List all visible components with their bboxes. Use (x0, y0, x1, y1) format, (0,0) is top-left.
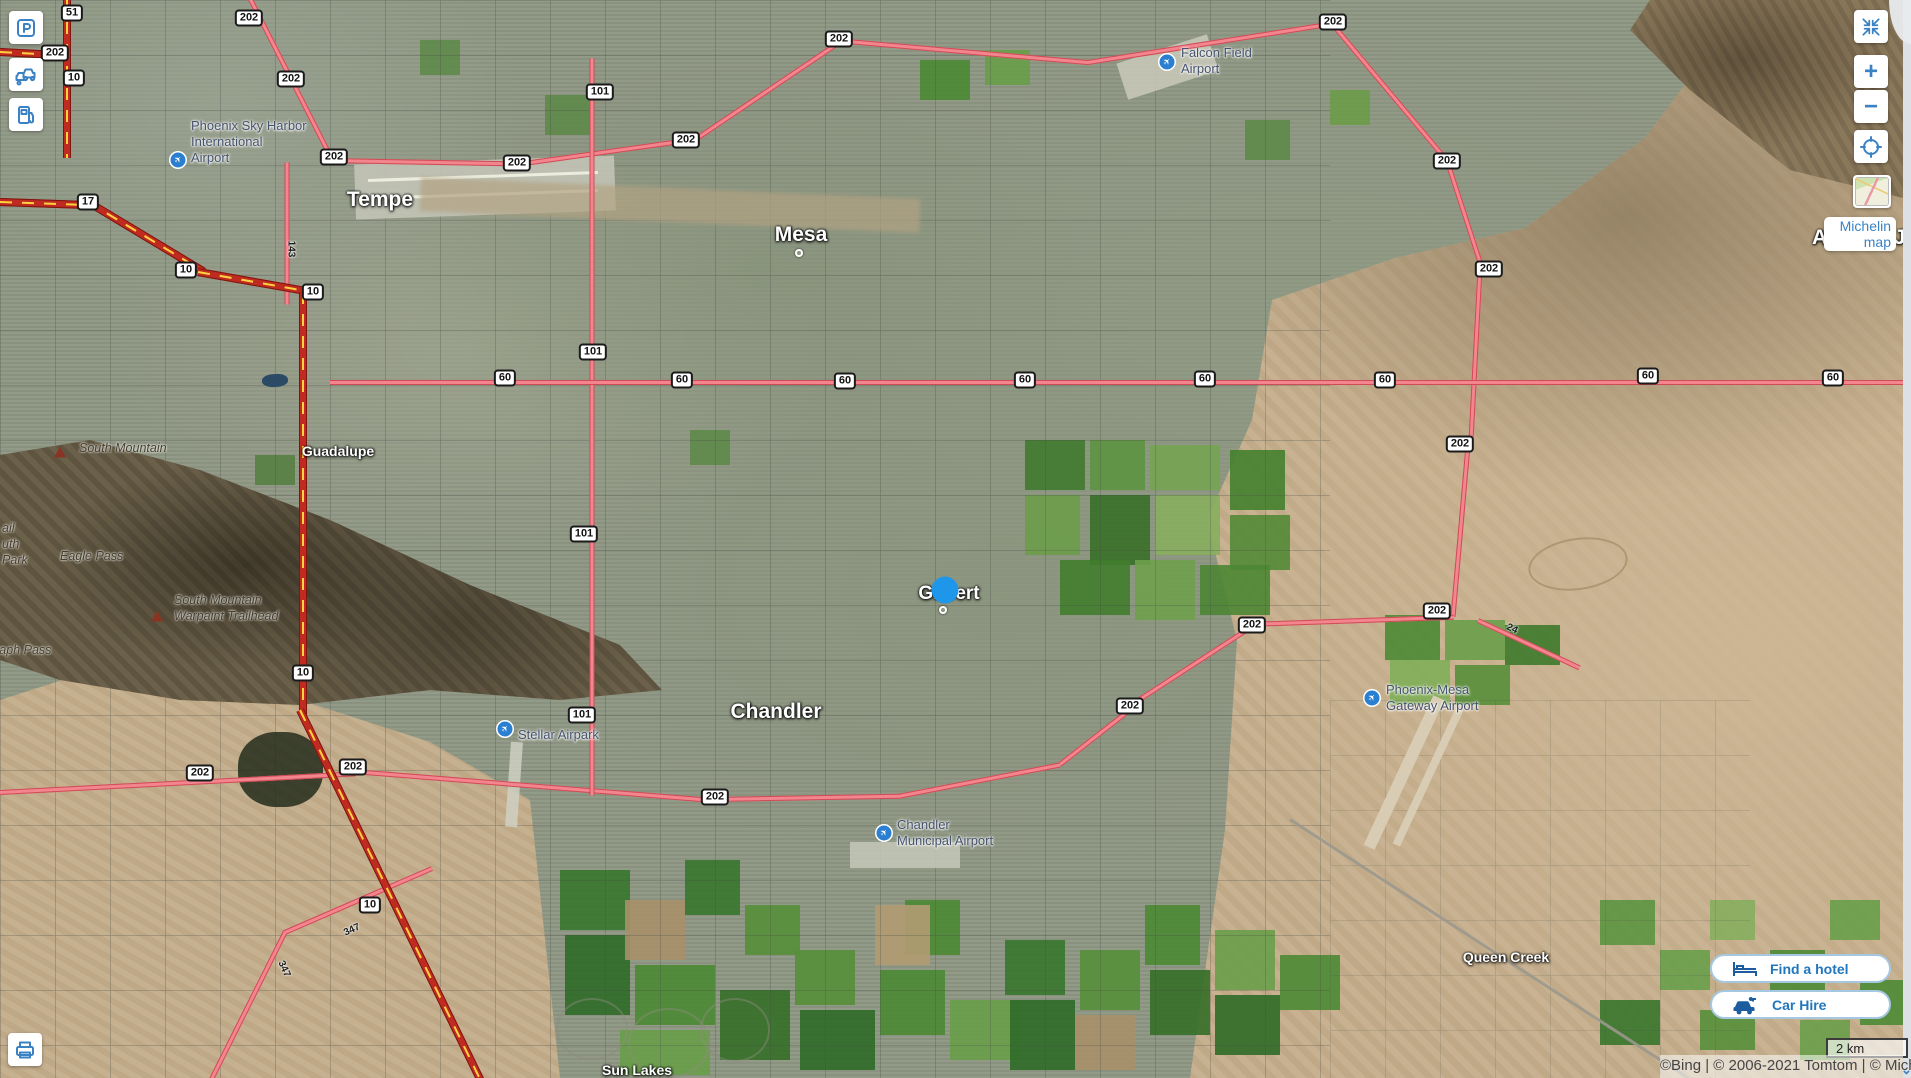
highway-segment (1134, 626, 1251, 704)
parking-button[interactable] (9, 11, 43, 44)
zoom-out-button[interactable]: − (1854, 90, 1888, 123)
highway-segment (1468, 268, 1483, 450)
highway-segment (590, 59, 595, 796)
highway-segment (898, 763, 1061, 799)
minus-icon: − (1864, 93, 1878, 121)
highway-segment (713, 794, 901, 802)
highway-segment (296, 708, 484, 1078)
highway-segment (1477, 618, 1581, 670)
highway-segment (86, 199, 206, 275)
car-hire-button[interactable]: Car Hire (1710, 990, 1891, 1019)
highway-segment (1058, 703, 1138, 767)
highway-segment (282, 866, 433, 935)
highway-segment (687, 41, 841, 147)
traffic-button[interactable] (9, 58, 43, 91)
locate-button[interactable] (1854, 130, 1888, 163)
car-hire-label: Car Hire (1772, 997, 1826, 1013)
printer-icon (13, 1039, 37, 1061)
highway-segment (1451, 445, 1471, 617)
highway-segment (63, 0, 71, 158)
bed-icon (1732, 960, 1758, 978)
highway-segment (353, 769, 715, 803)
right-edge-panel (1903, 0, 1911, 1078)
scale-label: 2 km (1836, 1041, 1864, 1056)
highways (0, 0, 1911, 1078)
map-thumbnail-icon (1855, 177, 1889, 206)
highway-segment (1247, 615, 1454, 627)
collapse-icon (1859, 15, 1883, 39)
highway-segment (0, 771, 356, 795)
highway-segment (1088, 21, 1336, 65)
zoom-in-button[interactable]: + (1854, 55, 1888, 88)
print-button[interactable] (8, 1033, 42, 1066)
highway-segment (246, 0, 331, 154)
fuel-stations-button[interactable] (9, 98, 43, 131)
collapse-button[interactable] (1854, 10, 1888, 43)
highway-segment (836, 38, 1089, 65)
highway-segment (1289, 818, 1698, 1078)
find-hotel-button[interactable]: Find a hotel (1710, 954, 1891, 983)
map-viewport[interactable]: 5120210202202202171010101202202202202202… (0, 0, 1911, 1078)
map-style-tooltip: Michelin map (1824, 217, 1896, 251)
highway-segment (1445, 160, 1485, 270)
highway-segment (1329, 21, 1449, 162)
parking-icon (15, 17, 37, 39)
car-key-icon (1732, 995, 1760, 1015)
plus-icon: + (1864, 58, 1878, 86)
locate-icon (1859, 135, 1883, 159)
highway-segment (0, 198, 94, 209)
highway-segment (197, 268, 315, 296)
map-style-button[interactable] (1853, 175, 1891, 208)
highway-segment (330, 380, 1911, 385)
fuel-station-icon (15, 104, 37, 126)
chevron-down-icon[interactable]: ⌄ (1901, 1062, 1911, 1078)
attribution-text: ©Bing | © 2006-2021 Tomtom | © Michelin (1660, 1057, 1911, 1074)
highway-segment (209, 931, 287, 1078)
highway-segment (517, 138, 692, 167)
find-hotel-label: Find a hotel (1770, 961, 1849, 977)
highway-segment (299, 292, 307, 716)
highway-segment (326, 158, 521, 166)
traffic-icon (14, 64, 38, 86)
attribution: ©Bing | © 2006-2021 Tomtom | © Michelin (1660, 1055, 1903, 1078)
